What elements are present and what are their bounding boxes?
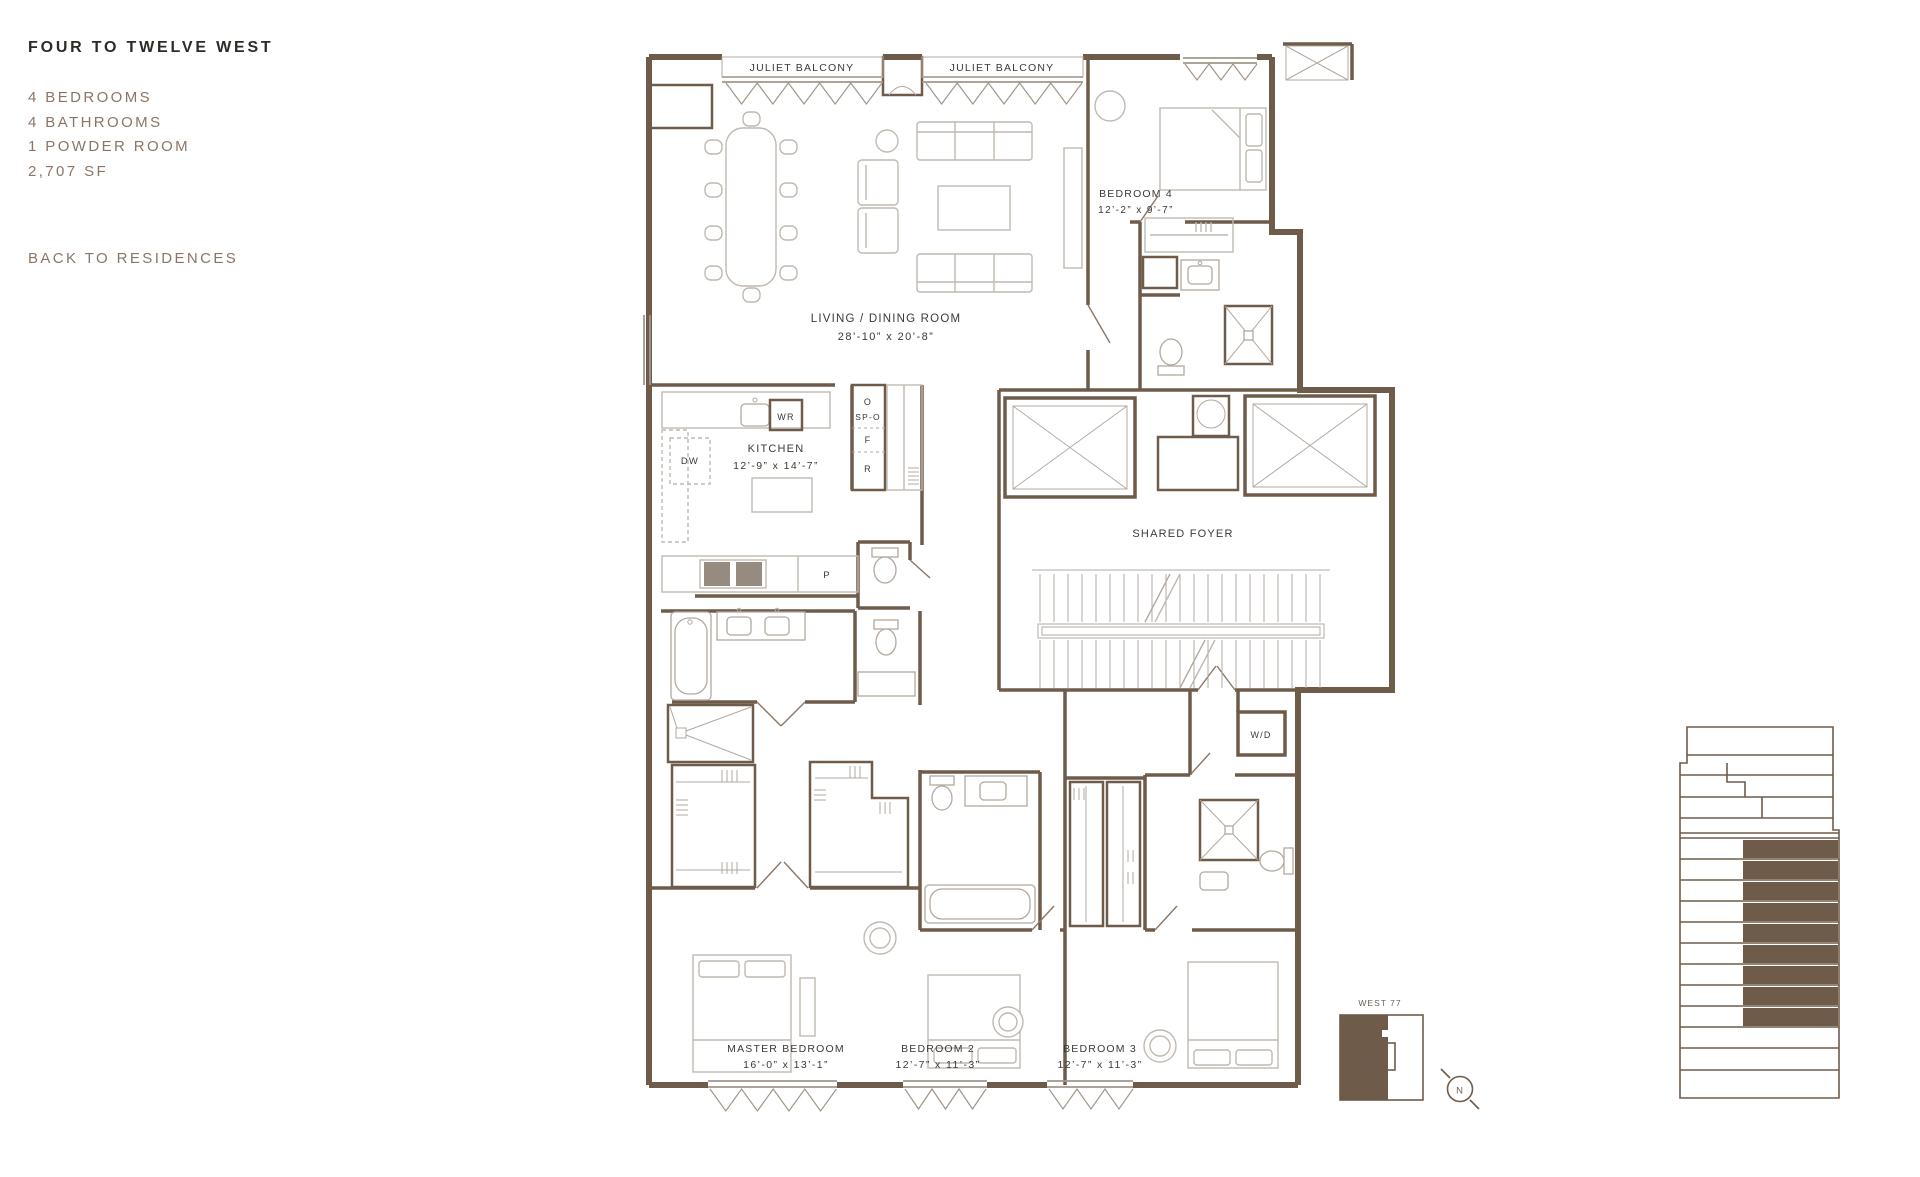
hall-closets — [1070, 782, 1140, 926]
master-bedroom-label: MASTER BEDROOM — [727, 1043, 845, 1055]
bedroom4-label: BEDROOM 4 — [1099, 188, 1173, 200]
juliet-balcony-right: JULIET BALCONY — [922, 57, 1083, 77]
master-bedroom-dims: 16’-0” x 13’-1” — [743, 1059, 829, 1071]
trash-chute — [1158, 396, 1238, 490]
powder-room — [872, 548, 898, 583]
highlighted-floors — [1743, 840, 1838, 1026]
washer-dryer-label: W/D — [1250, 730, 1271, 740]
juliet-balcony-left-label: JULIET BALCONY — [750, 62, 855, 74]
elevator-right — [1245, 396, 1375, 495]
master-shower — [668, 705, 753, 762]
window-drapes — [710, 64, 1257, 1111]
bedroom4-bathroom — [1143, 257, 1272, 375]
bedroom3-dims: 12’-7” x 11’-3” — [1058, 1059, 1143, 1071]
compass: N — [1441, 1069, 1479, 1109]
stairs — [1032, 570, 1330, 688]
kitchen-label: KITCHEN — [748, 443, 805, 455]
living-room-furniture — [858, 122, 1082, 292]
keyplan-label: WEST 77 — [1358, 998, 1401, 1008]
bedroom2-label: BEDROOM 2 — [901, 1043, 975, 1055]
juliet-balcony-left: JULIET BALCONY — [722, 57, 883, 77]
floorplan-canvas: JULIET BALCONY JULIET BALCONY — [0, 0, 1920, 1177]
dishwasher-label: DW — [681, 456, 699, 467]
living-dining-dims: 28’-10” x 20’-8” — [838, 331, 934, 343]
bedroom3-furniture — [1144, 962, 1278, 1068]
compass-north-label: N — [1456, 1086, 1464, 1097]
bedroom4-furniture — [1095, 91, 1266, 252]
bedroom2-bathroom — [925, 776, 1035, 923]
keyplan: WEST 77 N — [1340, 998, 1479, 1109]
freezer-label: F — [865, 435, 872, 445]
bedroom4-dims: 12’-2” x 9’-7” — [1098, 205, 1174, 216]
warming-drawer-label: WR — [777, 412, 794, 422]
speed-oven-label: SP-O — [855, 412, 881, 422]
shared-foyer-label: SHARED FOYER — [1132, 528, 1233, 540]
dining-table — [705, 112, 797, 302]
oven-label: O — [864, 397, 872, 407]
elevator-left — [1005, 398, 1135, 497]
kitchen-dims: 12’-9” x 14’-7” — [733, 460, 819, 472]
refrigerator-label: R — [864, 464, 872, 474]
elevation-key — [1680, 727, 1839, 1098]
doors — [757, 196, 1235, 930]
master-bathroom — [671, 608, 915, 700]
bedroom3-label: BEDROOM 3 — [1063, 1043, 1137, 1055]
roof-terrace-detail — [1286, 46, 1348, 80]
bedroom3-bathroom — [1200, 800, 1293, 890]
juliet-balcony-right-label: JULIET BALCONY — [950, 62, 1055, 74]
living-dining-label: LIVING / DINING ROOM — [811, 313, 962, 325]
pantry-label: P — [823, 570, 831, 581]
bedroom2-dims: 12’-7” x 11’-3” — [896, 1059, 981, 1071]
